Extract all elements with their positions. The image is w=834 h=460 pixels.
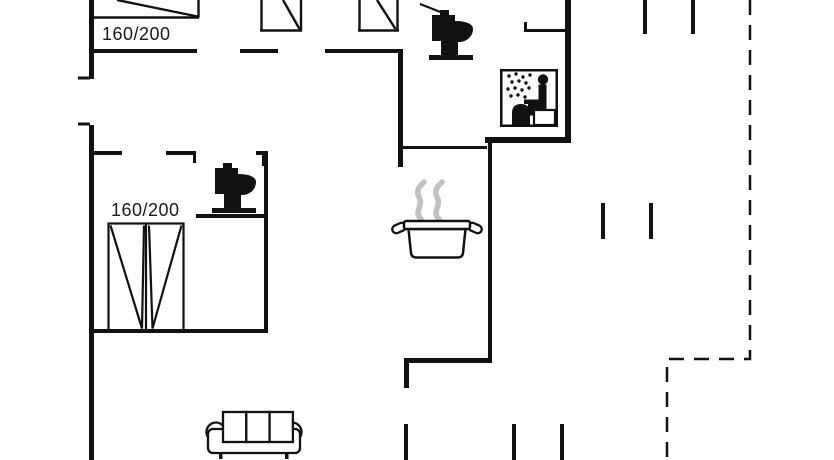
- wall-kitchen-right: [488, 143, 492, 362]
- cooking-pot-icon: [391, 182, 483, 258]
- single-bed-icon-top-middle-2: [358, 0, 399, 31]
- wall-left-upper: [89, 0, 94, 79]
- wall-bedroom2-right: [264, 151, 268, 332]
- wall-top-right-2: [691, 0, 695, 34]
- wall-shower-bottom: [485, 137, 571, 143]
- exterior-walls: [89, 0, 571, 460]
- wall-shower-door-stub: [524, 22, 527, 32]
- wall-shower-door-lintel: [524, 29, 566, 32]
- window-mark-icon: [78, 123, 90, 126]
- window-mark-icon: [78, 77, 90, 80]
- pot-body: [391, 221, 483, 258]
- shower-column: [512, 104, 530, 126]
- shower-icon: [501, 70, 557, 126]
- wall-top-right-1: [643, 0, 647, 34]
- bed-size-label: 160/200: [111, 201, 180, 219]
- door-swing-line: [420, 4, 443, 13]
- sofa-icon: [207, 412, 302, 459]
- shower-bench: [534, 110, 555, 125]
- wall-mid-right-1: [601, 203, 605, 239]
- bed-size-label: 160/200: [102, 25, 171, 43]
- wall-wc-bottom: [196, 214, 268, 218]
- bed-size-label: 160/200: [296, 0, 336, 3]
- wall-bathroom-left: [398, 49, 403, 167]
- floor-plan-drawing: [0, 0, 834, 460]
- wall-top-c: [325, 49, 403, 53]
- wall-wc-door-stub-left: [193, 151, 196, 163]
- wall-top-b: [240, 49, 278, 53]
- steam-icon: [418, 182, 442, 219]
- toilet-icon: [429, 10, 473, 60]
- wall-top-a: [89, 49, 197, 53]
- bed-size-label-clipped: 160/200: [296, 0, 336, 5]
- window-marks: [78, 77, 90, 126]
- wall-bottom-3: [560, 424, 564, 460]
- wall-kitchen-bottom: [404, 358, 492, 363]
- single-bed-icon-top-left: [91, 0, 199, 18]
- wall-left-lower: [89, 125, 94, 460]
- wall-kitchen-stub: [404, 358, 409, 388]
- wall-bedroom2-top-a: [89, 151, 122, 155]
- terrace-dashed-boundary: [667, 0, 750, 460]
- toilet-icon: [212, 163, 256, 213]
- wall-bottom-2: [512, 424, 516, 460]
- double-bed-icon: [109, 224, 184, 332]
- wall-bottom-1: [404, 424, 408, 460]
- wall-hall-bottom: [398, 146, 487, 149]
- floor-plan: 160/200 160/200 160/200: [0, 0, 834, 460]
- wall-shower-right: [565, 0, 571, 143]
- wall-mid-right-2: [649, 203, 653, 239]
- wall-bedroom2-top-b: [166, 151, 196, 155]
